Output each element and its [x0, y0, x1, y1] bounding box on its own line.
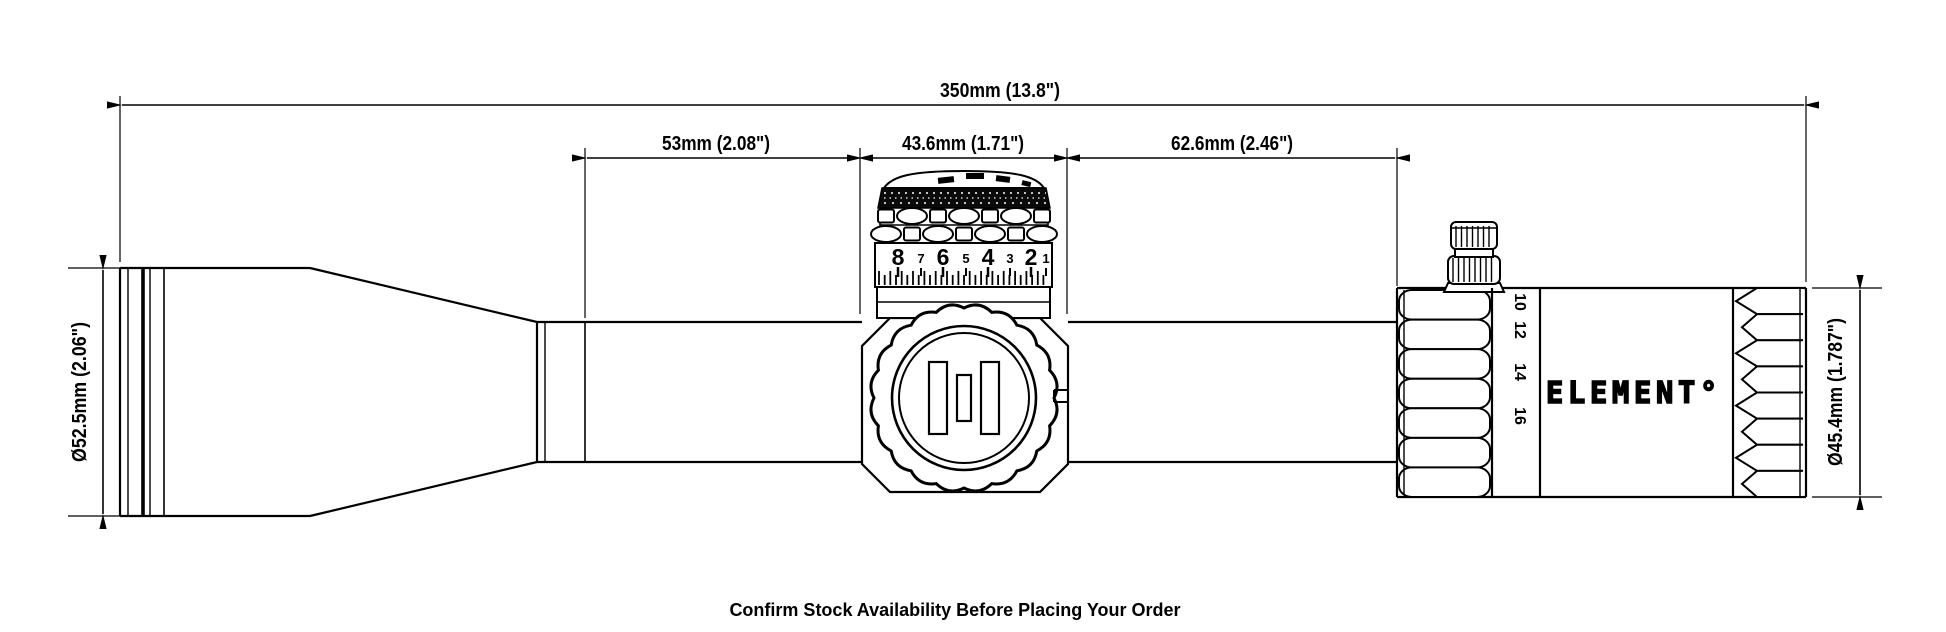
dial-number: 1: [1042, 251, 1049, 266]
elevation-turret: 8 7 6 5 4 3 2 1: [871, 171, 1057, 318]
dial-number: 3: [1006, 251, 1013, 266]
objective-to-turret-label: 53mm (2.08"): [662, 133, 770, 155]
turret-saddle-width-label: 43.6mm (1.71"): [902, 133, 1024, 155]
turret-cap-top: [884, 171, 1044, 188]
eyepiece-body: ELEMENT°: [1546, 288, 1733, 497]
magnification-indicator-band: 10 12 14 16: [1492, 288, 1540, 497]
footer-note: Confirm Stock Availability Before Placin…: [729, 600, 1180, 620]
element-brand-text: ELEMENT°: [1546, 376, 1722, 411]
mag-number: 16: [1511, 407, 1528, 425]
mag-number: 14: [1511, 363, 1528, 381]
dial-number: 2: [1025, 244, 1038, 270]
diopter-ring: [1736, 288, 1803, 497]
dial-number: 5: [962, 251, 969, 266]
objective-bell: [120, 268, 537, 516]
objective-bell-diameter-label: Ø52.5mm (2.06"): [69, 322, 91, 462]
dial-number: 4: [982, 244, 995, 270]
dial-number: 6: [937, 244, 950, 270]
scope-technical-drawing: 350mm (13.8") 53mm (2.08") 43.6mm (1.71"…: [0, 0, 1946, 632]
dial-number: 8: [892, 244, 905, 270]
dimension-eyepiece-diameter: [1812, 288, 1882, 497]
mag-number: 12: [1511, 321, 1528, 339]
magnification-ring: [1399, 290, 1490, 497]
turret-to-eyepiece-label: 62.6mm (2.46"): [1171, 133, 1293, 155]
turret-knurl-band: [878, 188, 1050, 208]
throw-lever-knob: [1444, 222, 1504, 292]
dial-number: 7: [917, 251, 924, 266]
eyepiece-diameter-label: Ø45.4mm (1.787"): [1825, 318, 1847, 466]
overall-length-label: 350mm (13.8"): [940, 80, 1060, 102]
mag-number: 10: [1511, 293, 1528, 311]
